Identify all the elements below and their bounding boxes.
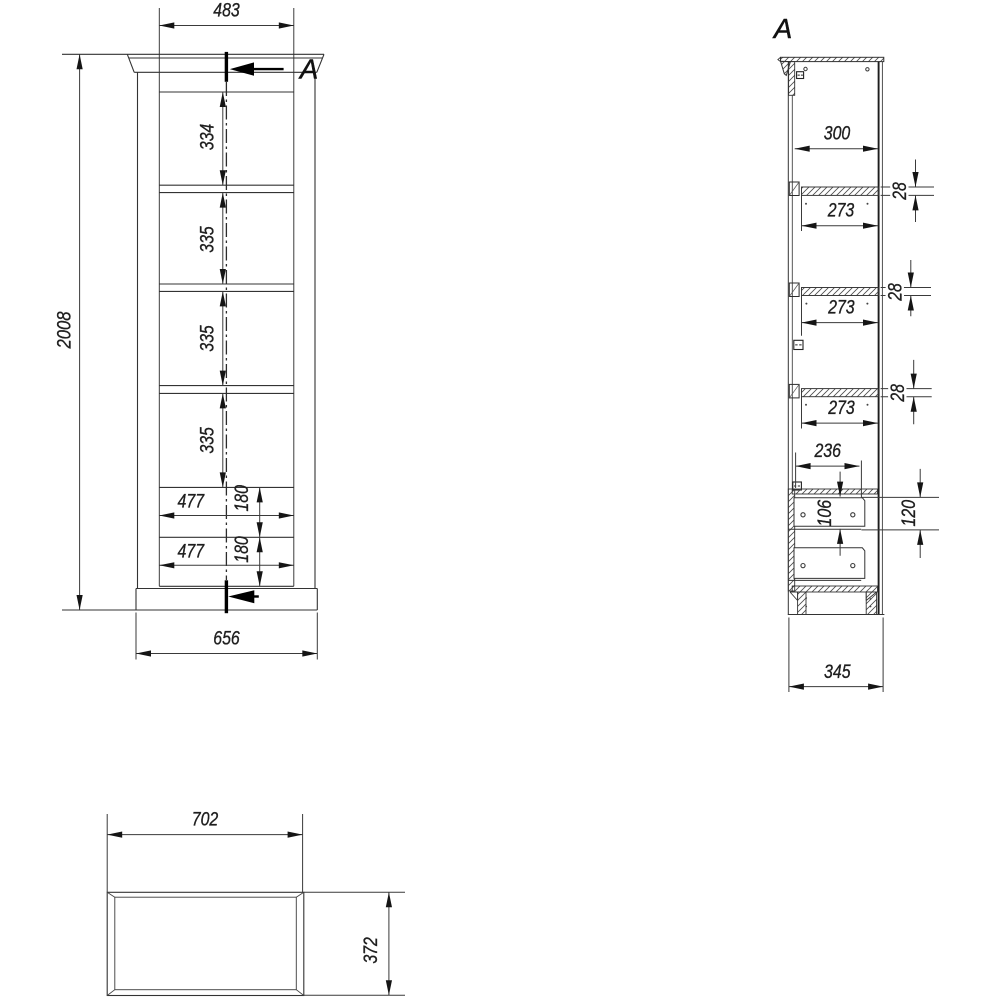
svg-text:A: A — [772, 13, 792, 44]
svg-text:120: 120 — [898, 500, 920, 527]
svg-text:273: 273 — [827, 397, 854, 419]
svg-text:106: 106 — [814, 500, 836, 527]
svg-text:180: 180 — [231, 536, 253, 563]
svg-text:345: 345 — [824, 661, 851, 683]
svg-text:28: 28 — [884, 283, 906, 301]
svg-text:477: 477 — [178, 491, 205, 513]
svg-text:28: 28 — [889, 182, 911, 200]
svg-text:335: 335 — [196, 325, 218, 352]
svg-text:300: 300 — [824, 123, 851, 145]
svg-text:273: 273 — [827, 297, 854, 319]
svg-text:702: 702 — [192, 809, 219, 831]
svg-text:273: 273 — [827, 200, 854, 222]
svg-text:477: 477 — [178, 540, 205, 562]
svg-text:2008: 2008 — [54, 311, 76, 349]
svg-text:335: 335 — [196, 427, 218, 454]
svg-text:656: 656 — [213, 628, 240, 650]
svg-text:483: 483 — [213, 0, 240, 22]
svg-text:28: 28 — [887, 384, 909, 402]
svg-text:372: 372 — [360, 937, 382, 964]
svg-text:A: A — [298, 54, 318, 85]
svg-text:180: 180 — [231, 485, 253, 512]
svg-text:236: 236 — [814, 440, 841, 462]
svg-text:335: 335 — [196, 226, 218, 253]
svg-text:334: 334 — [196, 124, 218, 151]
